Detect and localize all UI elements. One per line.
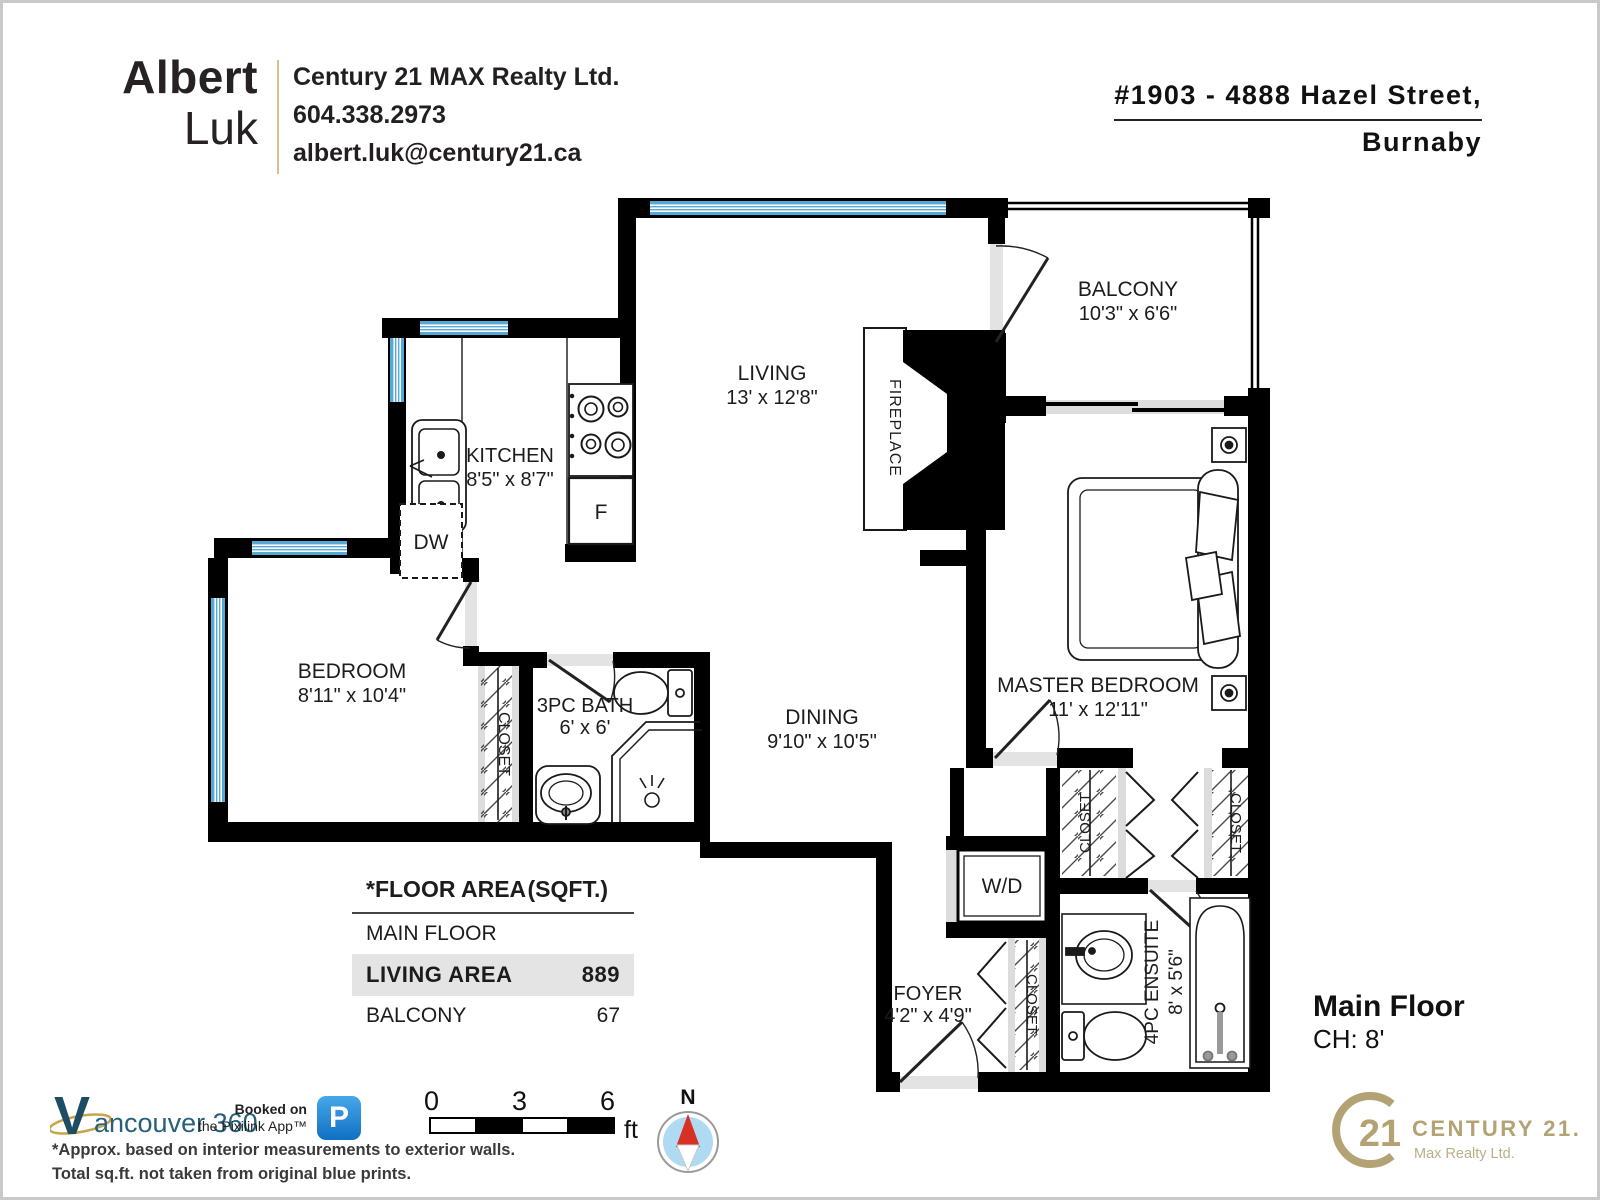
scale-unit: ft	[624, 1116, 638, 1144]
area-row-balcony: BALCONY 67	[352, 996, 634, 1036]
nightstand-top	[1212, 428, 1246, 462]
disclaimer-line1: *Approx. based on interior measurements …	[52, 1138, 515, 1162]
entry-door	[900, 1022, 978, 1082]
bedroom-dims: 8'11" x 10'4"	[298, 685, 406, 707]
foyer-dims: 4'2" x 4'9"	[884, 1005, 971, 1027]
living-label: LIVING	[738, 362, 807, 385]
compass-north-label: N	[680, 1086, 695, 1109]
kitchen-window-left	[388, 338, 406, 402]
bedroom-closet-label: CLOSET	[495, 712, 512, 776]
area-row-main-floor: MAIN FLOOR	[352, 914, 634, 954]
floor-area-table: *FLOOR AREA (SQFT.) MAIN FLOOR LIVING AR…	[352, 876, 634, 1036]
dining-dims: 9'10" x 10'5"	[767, 731, 877, 753]
bedroom-label: BEDROOM	[298, 660, 407, 683]
area-row-living-area: LIVING AREA 889	[352, 954, 634, 996]
pixilink-line2: the Pixilink App™	[198, 1118, 307, 1135]
dining-label: DINING	[785, 706, 859, 729]
bedroom-window-top	[252, 538, 347, 558]
ensuite-dims: 8' x 5'6"	[1166, 949, 1187, 1015]
pixilink-badge: Booked on the Pixilink App™ P	[198, 1096, 361, 1140]
ensuite-label: 4PC ENSUITE	[1142, 920, 1163, 1045]
compass-icon: N	[658, 1086, 718, 1172]
wd-label: W/D	[982, 875, 1023, 898]
area-table-header: *FLOOR AREA (SQFT.)	[352, 876, 634, 914]
balcony-door	[996, 246, 1048, 342]
scale-tick-6: 6	[600, 1086, 615, 1116]
bath-shower	[612, 722, 702, 822]
floor-name-block: Main Floor CH: 8'	[1313, 990, 1465, 1054]
scale-tick-0: 0	[424, 1086, 439, 1116]
area-row-value: 67	[574, 1004, 620, 1028]
ensuite-toilet	[1062, 1012, 1146, 1060]
fridge-label: F	[595, 501, 608, 524]
bath-label: 3PC BATH	[537, 695, 633, 717]
pixilink-p-icon: P	[317, 1096, 361, 1140]
pixilink-text: Booked on the Pixilink App™	[198, 1101, 307, 1135]
master-closet-left-label: CLOSET	[1077, 793, 1094, 853]
living-dims: 13' x 12'8"	[726, 387, 817, 409]
area-row-value	[574, 922, 620, 946]
nightstand-bottom	[1212, 676, 1246, 710]
ensuite-sink	[1062, 914, 1146, 1004]
disclaimer: *Approx. based on interior measurements …	[52, 1138, 515, 1186]
vancouver360-v: V	[54, 1086, 90, 1142]
kitchen-label: KITCHEN	[466, 445, 554, 467]
master-bed	[1068, 428, 1246, 710]
disclaimer-line2: Total sq.ft. not taken from original blu…	[52, 1162, 515, 1186]
stove	[569, 384, 633, 476]
foyer-closet-label: CLOSET	[1023, 974, 1040, 1034]
pixilink-line1: Booked on	[198, 1101, 307, 1118]
balcony-dims: 10'3" x 6'6"	[1079, 303, 1178, 325]
floor-name: Main Floor	[1313, 990, 1465, 1025]
floorplan-page: Albert Luk Century 21 MAX Realty Ltd. 60…	[0, 0, 1600, 1200]
master-dims: 11' x 12'11"	[1048, 699, 1148, 721]
century21-logo: 21 CENTURY 21. Max Realty Ltd.	[1336, 1096, 1581, 1164]
living-window	[650, 198, 946, 218]
area-table-unit: (SQFT.)	[528, 876, 609, 903]
bathtub	[1190, 898, 1250, 1068]
balcony-label: BALCONY	[1078, 278, 1178, 301]
scale-bar: 0 3 6 ft	[424, 1086, 638, 1144]
area-table-title: *FLOOR AREA	[366, 876, 526, 903]
bath-fixtures	[536, 670, 702, 824]
bath-dims: 6' x 6'	[560, 717, 611, 739]
century21-sub: Max Realty Ltd.	[1414, 1146, 1515, 1162]
area-row-label: BALCONY	[366, 1004, 466, 1028]
kitchen-window-top	[420, 318, 508, 338]
bedroom-window-left	[208, 598, 228, 802]
foyer-label: FOYER	[894, 983, 963, 1005]
kitchen-dims: 8'5" x 8'7"	[466, 469, 553, 491]
fireplace-label: FIREPLACE	[886, 379, 903, 477]
century21-name: CENTURY 21.	[1412, 1116, 1581, 1141]
area-row-value: 889	[574, 962, 620, 988]
dw-label: DW	[414, 531, 449, 554]
master-closet-right-label: CLOSET	[1227, 793, 1244, 853]
ceiling-height: CH: 8'	[1313, 1025, 1465, 1055]
century21-circle-number: 21	[1359, 1113, 1401, 1155]
area-row-label: LIVING AREA	[366, 962, 512, 988]
scale-tick-3: 3	[512, 1086, 527, 1116]
fireplace	[864, 328, 1005, 530]
bath-sink	[536, 766, 600, 824]
area-row-label: MAIN FLOOR	[366, 922, 497, 946]
master-label: MASTER BEDROOM	[997, 674, 1199, 697]
